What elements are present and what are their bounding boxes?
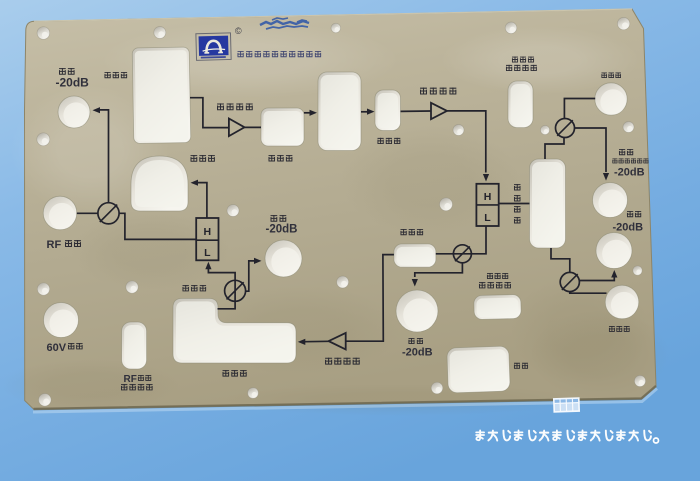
svg-text:-20dB: -20dB	[614, 167, 645, 179]
svg-text:-20dB: -20dB	[613, 222, 644, 234]
svg-text:-20dB: -20dB	[402, 347, 433, 359]
svg-text:L: L	[484, 212, 491, 224]
svg-text:RF: RF	[47, 239, 62, 251]
svg-text:L: L	[204, 247, 211, 259]
svg-text:-20dB: -20dB	[266, 224, 298, 236]
svg-text:-20dB: -20dB	[56, 76, 90, 90]
svg-text:H: H	[484, 191, 492, 203]
svg-text:60V: 60V	[47, 342, 67, 354]
svg-text:H: H	[204, 226, 212, 238]
svg-text:RF: RF	[124, 374, 137, 385]
svg-text:©: ©	[235, 26, 242, 36]
